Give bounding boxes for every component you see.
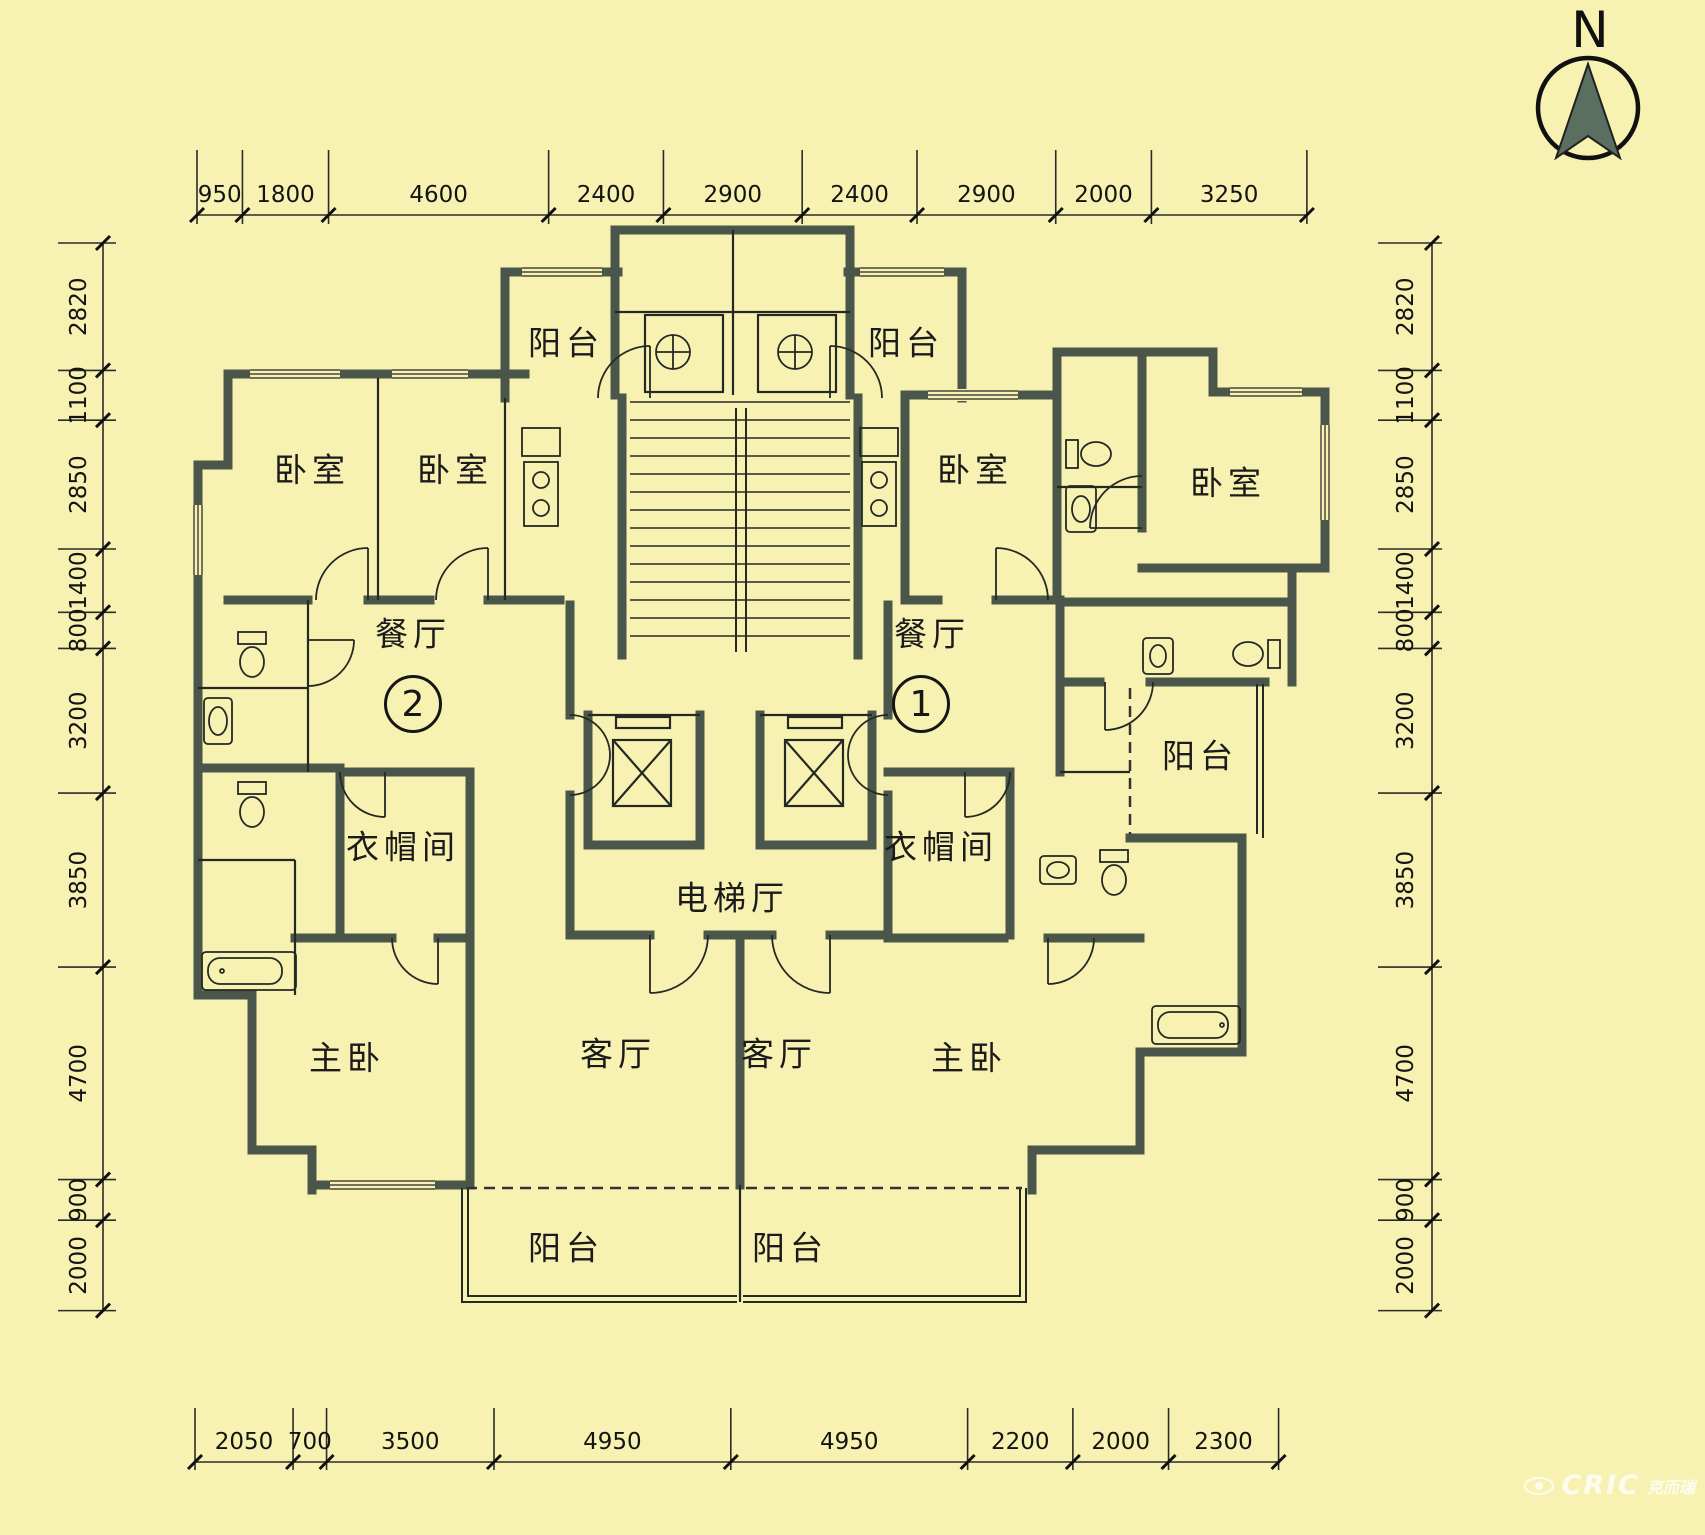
dim-top-label-8: 3250 — [1200, 182, 1259, 208]
eye-icon — [1523, 1476, 1555, 1496]
basin-icon — [1040, 856, 1076, 884]
window — [192, 505, 204, 575]
dim-top-label-1: 1800 — [256, 182, 315, 208]
window — [928, 389, 1018, 401]
dim-bottom-label-6: 2000 — [1091, 1429, 1150, 1455]
dim-top-label-6: 2900 — [957, 182, 1016, 208]
elevators — [613, 717, 843, 806]
dim-top-label-7: 2000 — [1074, 182, 1133, 208]
staircase — [630, 402, 850, 652]
room-label-bedroom-4: 卧室 — [1190, 467, 1266, 500]
dim-left-label-3: 1400 — [66, 551, 92, 610]
window — [392, 368, 468, 380]
room-label-balcony-right: 阳台 — [1162, 740, 1238, 773]
dim-top-label-0: 950 — [198, 182, 242, 208]
sink-icon — [522, 428, 560, 456]
unit-1-badge: 1 — [892, 675, 950, 733]
dim-right-label-5: 3200 — [1393, 691, 1419, 750]
floor-plan-drawing: 9501800460024002900240029002000325020507… — [0, 0, 1705, 1535]
dim-right-label-3: 1400 — [1393, 551, 1419, 610]
window — [1230, 386, 1302, 398]
unit-2-badge: 2 — [384, 675, 442, 733]
room-label-living-left: 客厅 — [580, 1038, 656, 1071]
room-label-bedroom-3: 卧室 — [937, 454, 1013, 487]
room-label-bedroom-1: 卧室 — [274, 454, 350, 487]
dim-left-label-8: 900 — [66, 1178, 92, 1222]
dim-left-label-6: 3850 — [66, 851, 92, 910]
room-label-balcony-bottom-left: 阳台 — [528, 1232, 604, 1265]
dim-right-label-2: 2850 — [1393, 455, 1419, 514]
dim-bottom-label-1: 700 — [288, 1429, 332, 1455]
toilet-icon — [1100, 850, 1128, 862]
dimension-layer: 9501800460024002900240029002000325020507… — [58, 150, 1442, 1470]
room-label-dining-right: 餐厅 — [894, 618, 970, 651]
window — [860, 266, 944, 278]
toilet-icon — [1066, 440, 1078, 468]
railings — [462, 684, 1263, 1302]
dim-bottom-label-2: 3500 — [381, 1429, 440, 1455]
room-label-bedroom-2: 卧室 — [417, 454, 493, 487]
window — [250, 368, 340, 380]
dim-top-label-4: 2900 — [704, 182, 763, 208]
toilet-icon — [238, 632, 266, 644]
watermark-brand: CRIC — [1562, 1470, 1640, 1501]
dim-bottom-label-3: 4950 — [583, 1429, 642, 1455]
dim-bottom-label-0: 2050 — [215, 1429, 274, 1455]
dimension-strip-bottom: 2050700350049504950220020002300 — [188, 1408, 1286, 1470]
window — [522, 266, 602, 278]
window — [1319, 425, 1331, 520]
dim-left-label-0: 2820 — [66, 277, 92, 336]
dim-bottom-label-4: 4950 — [820, 1429, 879, 1455]
basin-icon — [1143, 638, 1173, 674]
room-label-cloakroom-right: 衣帽间 — [884, 831, 998, 864]
dim-right-label-4: 800 — [1393, 608, 1419, 652]
dim-top-label-3: 2400 — [577, 182, 636, 208]
dim-bottom-label-7: 2300 — [1194, 1429, 1253, 1455]
north-arrow-icon — [1532, 52, 1644, 164]
dimension-strip-right: 28201100285014008003200385047009002000 — [1378, 236, 1442, 1318]
dim-right-label-7: 4700 — [1393, 1044, 1419, 1103]
basin-icon — [1066, 486, 1096, 532]
room-label-master-left: 主卧 — [309, 1042, 385, 1075]
room-label-cloakroom-left: 衣帽间 — [346, 831, 460, 864]
window — [330, 1179, 435, 1191]
room-label-balcony-top-left: 阳台 — [528, 327, 604, 360]
watermark-company: 克而瑞 — [1647, 1474, 1695, 1498]
room-label-dining-left: 餐厅 — [375, 618, 451, 651]
room-label-elevator-hall: 电梯厅 — [675, 882, 789, 915]
room-label-living-right: 客厅 — [741, 1038, 817, 1071]
dimension-strip-top: 95018004600240029002400290020003250 — [190, 150, 1314, 224]
dim-bottom-label-5: 2200 — [991, 1429, 1050, 1455]
dim-left-label-1: 1100 — [66, 366, 92, 425]
watermark: CRIC 克而瑞 — [1523, 1470, 1695, 1501]
dim-right-label-0: 2820 — [1393, 277, 1419, 336]
toilet-icon — [238, 782, 266, 794]
toilet-icon — [1268, 640, 1280, 668]
dim-left-label-5: 3200 — [66, 691, 92, 750]
north-label: N — [1571, 1, 1608, 59]
dim-top-label-5: 2400 — [830, 182, 889, 208]
dim-right-label-1: 1100 — [1393, 366, 1419, 425]
room-label-balcony-bottom-right: 阳台 — [752, 1232, 828, 1265]
dim-right-label-8: 900 — [1393, 1178, 1419, 1222]
dim-top-label-2: 4600 — [409, 182, 468, 208]
room-label-balcony-top-right: 阳台 — [868, 327, 944, 360]
dim-right-label-9: 2000 — [1393, 1236, 1419, 1295]
dim-left-label-4: 800 — [66, 608, 92, 652]
dim-right-label-6: 3850 — [1393, 851, 1419, 910]
dimension-strip-left: 28201100285014008003200385047009002000 — [58, 236, 116, 1318]
dim-left-label-9: 2000 — [66, 1236, 92, 1295]
room-label-master-right: 主卧 — [931, 1042, 1007, 1075]
dim-left-label-7: 4700 — [66, 1044, 92, 1103]
sink-icon — [860, 428, 898, 456]
dim-left-label-2: 2850 — [66, 455, 92, 514]
